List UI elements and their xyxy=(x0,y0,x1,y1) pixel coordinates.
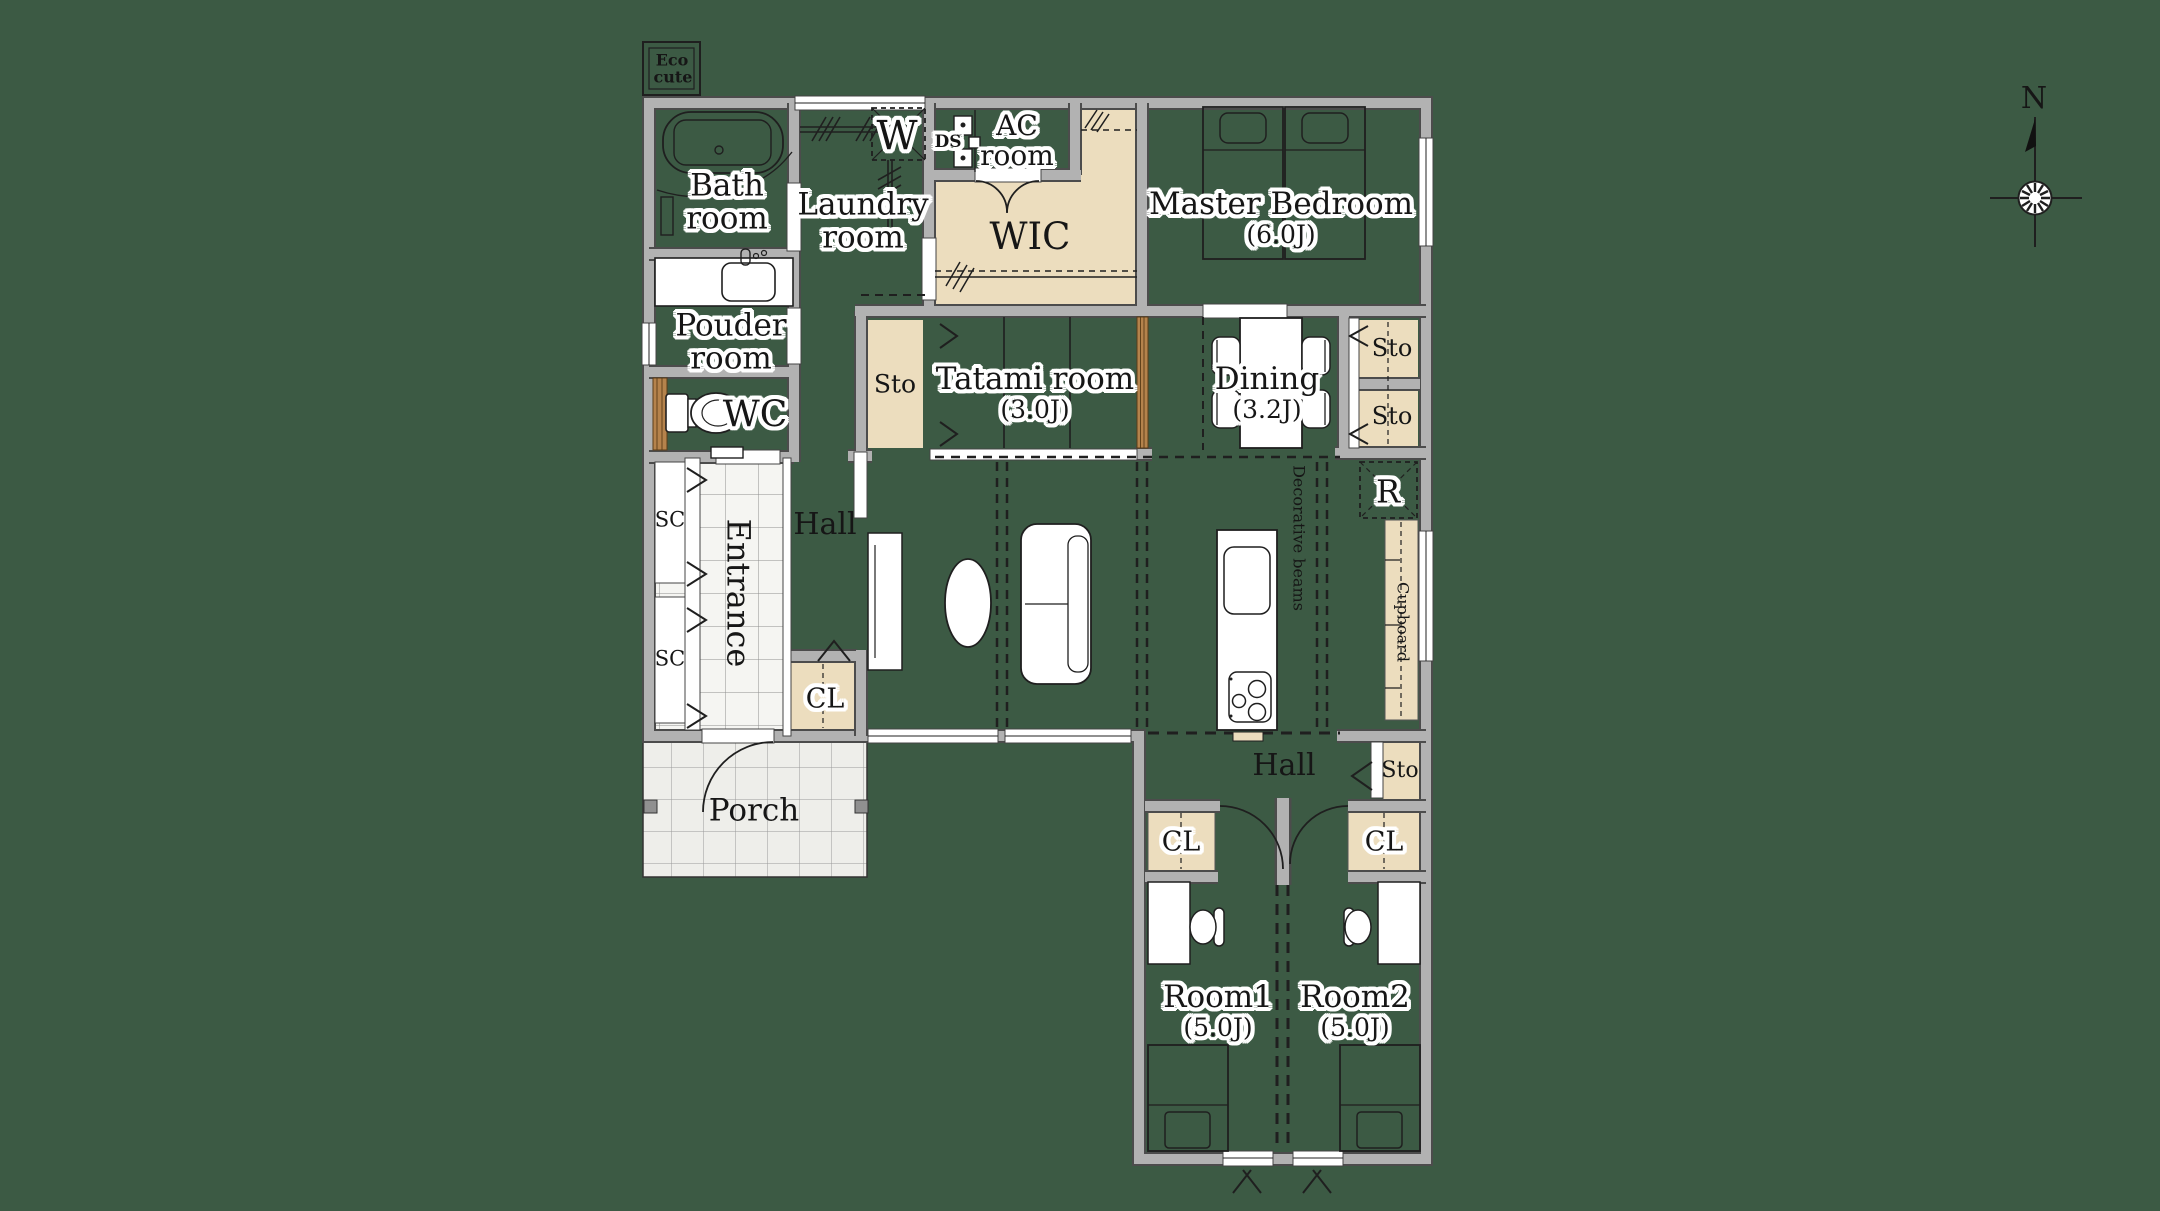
label-room2: Room2 (5.0J) xyxy=(1300,981,1410,1041)
label-porch: Porch xyxy=(709,794,799,827)
label-wic: WIC xyxy=(990,217,1071,257)
label-sto-2: Sto xyxy=(1372,404,1413,430)
label-cl-hall: CL xyxy=(806,684,845,713)
vanity-sink xyxy=(655,249,793,306)
room-desks xyxy=(1148,882,1420,964)
floor-plan-canvas: Eco cute Bath room Laundry room W DS AC … xyxy=(0,0,2160,1211)
window-step-marks xyxy=(1233,1170,1331,1193)
label-sc-1: SC xyxy=(655,509,685,532)
label-hall-south: Hall xyxy=(1252,750,1315,782)
tv-board xyxy=(868,533,902,670)
label-pouder-room: Pouder room xyxy=(675,310,786,377)
label-eco-cute-1: Eco xyxy=(656,51,689,68)
label-sto-1: Sto xyxy=(1372,336,1413,362)
label-master-bedroom: Master Bedroom (6.0J) xyxy=(1149,188,1413,248)
label-wc: WC xyxy=(723,397,788,436)
label-sc-2: SC xyxy=(655,648,685,671)
tatami-threshold xyxy=(930,449,1137,460)
floor-plan-drawing xyxy=(0,0,2160,1211)
label-compass-n: N xyxy=(2021,83,2047,115)
sofa xyxy=(1021,524,1091,684)
label-laundry-room: Laundry room xyxy=(797,189,928,256)
label-entrance: Entrance xyxy=(721,519,756,668)
label-eco-cute-2: cute xyxy=(654,68,693,85)
label-cl-room1: CL xyxy=(1162,827,1201,856)
label-sto-tatami: Sto xyxy=(874,371,916,398)
label-ac-room: AC room xyxy=(980,111,1054,171)
label-washer: W xyxy=(876,115,917,158)
room-beds xyxy=(1148,1045,1420,1151)
compass-icon xyxy=(1990,117,2082,247)
label-cl-room2: CL xyxy=(1365,827,1404,856)
label-ds: DS xyxy=(934,133,961,151)
hall-step xyxy=(783,458,791,736)
label-room1: Room1 (5.0J) xyxy=(1163,981,1273,1041)
label-hall-left: Hall xyxy=(793,509,856,541)
label-dining: Dining (3.2J) xyxy=(1215,363,1319,423)
label-bath-room: Bath room xyxy=(686,170,768,237)
label-tatami-room: Tatami room (3.0J) xyxy=(936,363,1134,423)
coffee-table xyxy=(945,559,991,647)
label-cupboard: Cupboard xyxy=(1394,582,1411,662)
label-sto-south: Sto xyxy=(1381,759,1418,783)
kitchen-island xyxy=(1217,530,1277,741)
label-decorative-beams: Decorative beams xyxy=(1290,465,1307,611)
label-fridge: R xyxy=(1376,475,1400,510)
entrance-step xyxy=(685,458,700,730)
